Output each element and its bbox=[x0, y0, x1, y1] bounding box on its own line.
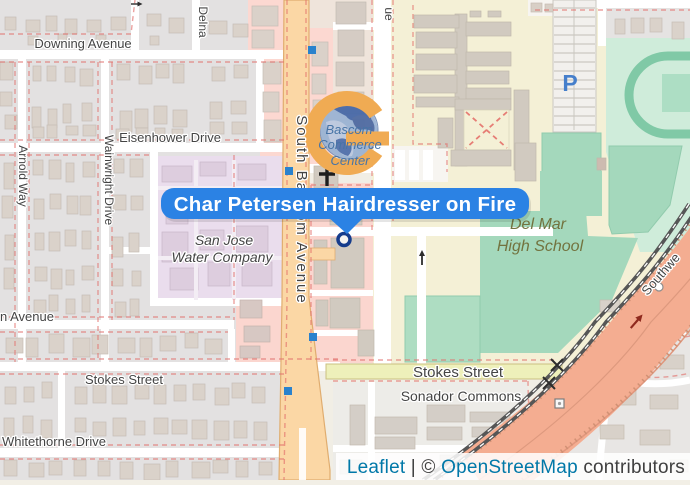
svg-text:Leaflet | © OpenStreetMap cont: Leaflet | © OpenStreetMap contributors bbox=[347, 457, 685, 478]
svg-text:Char Petersen Hairdresser on F: Char Petersen Hairdresser on Fire bbox=[174, 193, 517, 216]
